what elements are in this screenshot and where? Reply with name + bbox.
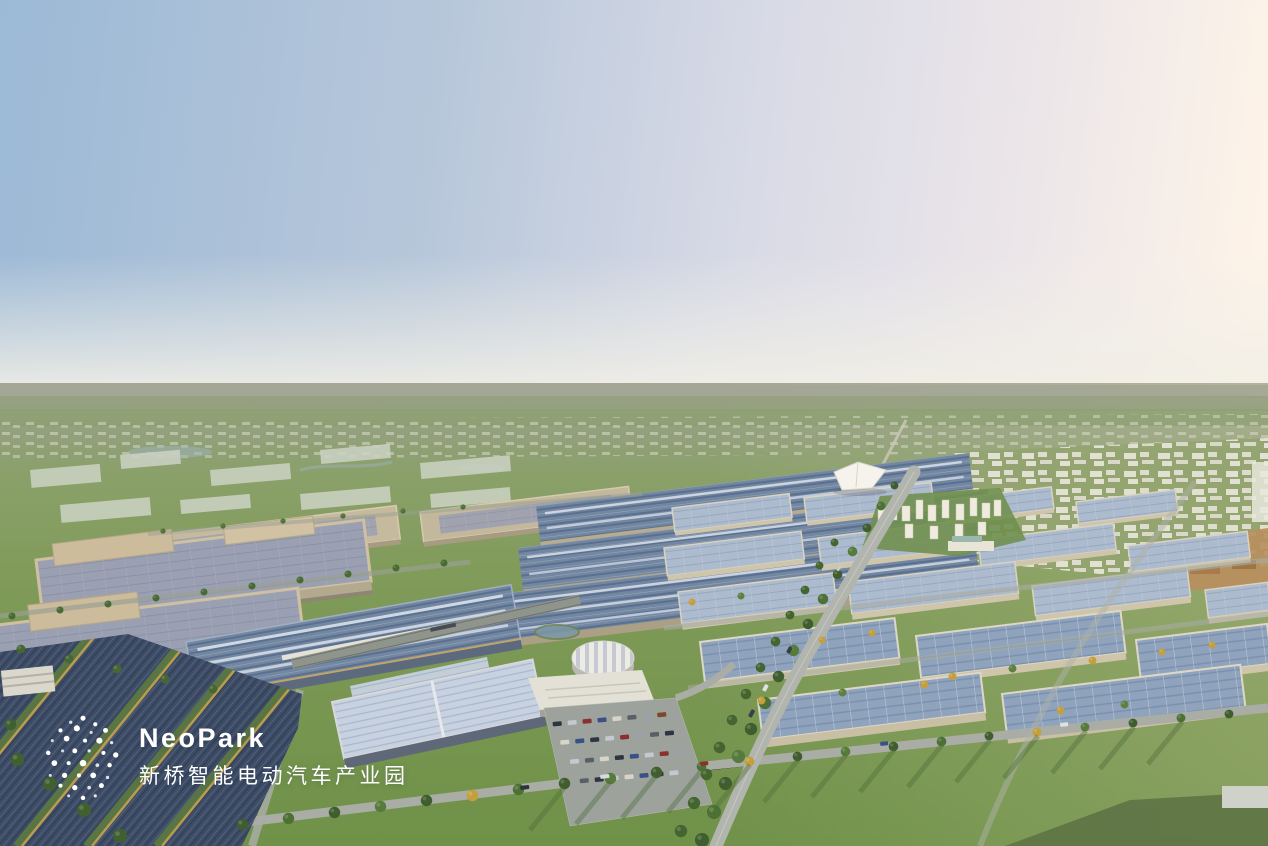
- green-roof: [952, 536, 982, 542]
- campus-pond: [535, 625, 579, 639]
- city-tower: [1252, 462, 1268, 522]
- school-podium: [948, 541, 994, 551]
- neopark-logo: NeoPark 新桥智能电动汽车产业园: [40, 712, 409, 802]
- sky: [0, 0, 1268, 392]
- horizon-haze: [0, 255, 1268, 389]
- flat-roof-building: [1222, 786, 1268, 808]
- dot-constellation-logo-icon: [40, 712, 126, 802]
- parking-garage: [1, 665, 55, 696]
- neopark-aerial-rendering: NeoPark 新桥智能电动汽车产业园: [0, 0, 1268, 846]
- brand-subtitle-chinese: 新桥智能电动汽车产业园: [139, 760, 409, 790]
- brand-name: NeoPark: [139, 724, 409, 754]
